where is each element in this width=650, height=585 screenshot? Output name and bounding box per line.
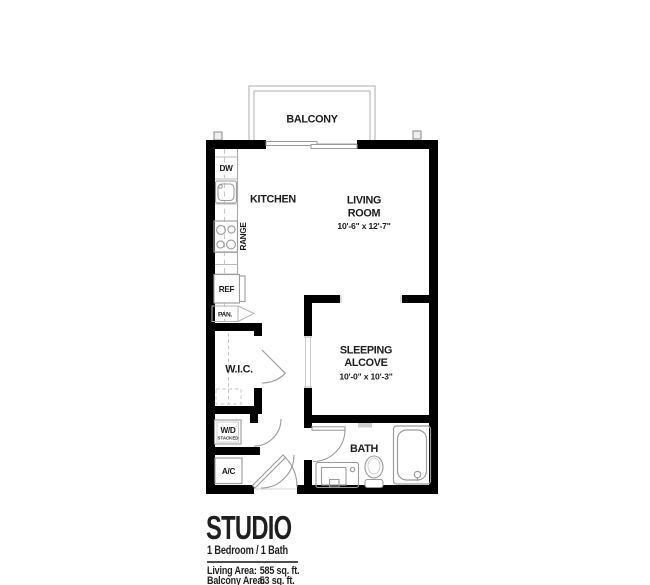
- hall-pocket-opening: [304, 337, 312, 387]
- range: [214, 221, 238, 252]
- balcony-area-value: 53 sq. ft.: [260, 577, 427, 585]
- living-room-line1: LIVING: [347, 195, 381, 207]
- vanity-counter: [316, 463, 359, 488]
- sink-faucet: [219, 185, 223, 189]
- refrigerator-label: REF: [219, 285, 235, 294]
- wall-bottom-left: [206, 485, 254, 494]
- bathtub: [394, 426, 431, 484]
- sleeping-alcove-dims: 10'-0" x 10'-3": [339, 372, 392, 382]
- wic-label: W.I.C.: [225, 364, 253, 376]
- vanity-sink: [316, 463, 359, 488]
- interior-walls: [206, 295, 438, 494]
- wic-door-arc: [262, 373, 285, 383]
- living-room-label: LIVING ROOM 10'-6" x 12'-7": [337, 195, 390, 232]
- entry-door: [253, 455, 298, 488]
- sleeping-alcove-line1: SLEEPING: [340, 345, 392, 357]
- pantry-door: [238, 306, 254, 322]
- pantry-label: PAN.: [218, 312, 233, 319]
- sliding-door-panel-outer: [266, 142, 317, 146]
- tub-inner: [398, 430, 427, 480]
- living-room-line2: ROOM: [348, 208, 381, 220]
- vanity-basin: [322, 468, 347, 486]
- floor-plan-svg: BALCONY: [0, 0, 650, 585]
- bath-wall-notch: [358, 423, 372, 428]
- burner-bl: [217, 241, 224, 248]
- tub-drain: [414, 471, 420, 477]
- divider-rule: [207, 561, 298, 563]
- ac-label: A/C: [222, 467, 236, 476]
- area-rows: Living Area: 585 sq. ft. Balcony Area: 5…: [207, 567, 427, 585]
- wic-door-leaf: [262, 350, 285, 373]
- wd-stacked-label: STACKED: [218, 436, 239, 441]
- tick-right: [413, 131, 421, 139]
- toilet-tank: [365, 480, 383, 488]
- burner-br: [227, 240, 236, 249]
- plan-subtitle: 1 Bedroom / 1 Bath: [207, 545, 414, 557]
- wd-label: W/D: [220, 426, 235, 435]
- wic-door: [262, 350, 285, 383]
- wall-tick-marks: [214, 131, 421, 140]
- title-block: STUDIO 1 Bedroom / 1 Bath Living Area: 5…: [206, 511, 466, 585]
- bath-door: [312, 427, 345, 462]
- wd-door-arc: [254, 419, 281, 446]
- wall-wd-stub: [250, 414, 258, 423]
- balcony-label: BALCONY: [286, 114, 338, 126]
- tick-left: [214, 132, 222, 140]
- wall-wic-top: [206, 323, 262, 331]
- bath-label: BATH: [350, 443, 378, 455]
- toilet: [365, 456, 383, 488]
- wall-divider-lower: [304, 460, 312, 494]
- wall-alcove-top-right: [402, 295, 438, 303]
- wall-wic-bottom: [206, 406, 262, 414]
- wall-top-right: [357, 140, 438, 149]
- sleeping-alcove-line2: ALCOVE: [344, 357, 387, 369]
- bath-door-arc: [313, 430, 345, 461]
- ref-door: [240, 276, 246, 302]
- kitchen-sink: [216, 181, 237, 203]
- wall-left: [206, 140, 215, 494]
- balcony-area-label: Balcony Area:: [207, 577, 260, 585]
- kitchen-label: KITCHEN: [250, 194, 296, 206]
- wall-wd-ac-divider: [206, 447, 260, 455]
- dishwasher-label: DW: [219, 164, 233, 173]
- sink-basin: [218, 184, 234, 201]
- plan-title: STUDIO: [206, 511, 393, 544]
- entry-door-arc: [286, 458, 298, 488]
- sleeping-alcove-label: SLEEPING ALCOVE 10'-0" x 10'-3": [339, 345, 392, 382]
- wall-bath-top: [304, 415, 438, 423]
- burner-tr: [228, 226, 235, 233]
- entry-door-leaf: [253, 455, 286, 488]
- living-room-dims: 10'-6" x 12'-7": [337, 221, 390, 231]
- vanity-knob: [350, 467, 354, 471]
- range-label: RANGE: [239, 222, 248, 251]
- wall-alcove-top-left: [304, 295, 340, 303]
- sliding-door-panel-inner: [311, 145, 357, 149]
- floor-plan-page: BALCONY: [0, 0, 650, 585]
- wall-wic-right-upper: [254, 323, 262, 336]
- bath-door-leaf: [312, 427, 345, 430]
- sliding-door: [266, 142, 357, 149]
- alcove-opening: [341, 296, 401, 303]
